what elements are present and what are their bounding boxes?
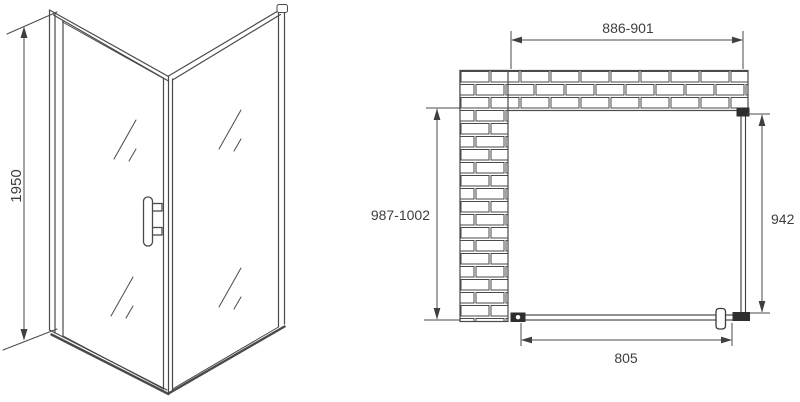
arrow-right-icon — [732, 37, 743, 44]
dimension-top-width — [511, 31, 743, 69]
shower-3d-view — [3, 5, 288, 395]
wall-bracket — [737, 108, 750, 117]
door-handle — [144, 197, 163, 246]
side-panel-bottom-rail — [169, 327, 285, 394]
left-depth-dimension-label: 987-1002 — [371, 207, 430, 223]
side-panel-wall-post — [277, 5, 288, 328]
hinge-pin — [516, 315, 520, 319]
arrow-down-icon — [759, 301, 766, 313]
side-panel-top-frame — [169, 10, 281, 81]
plan-view: 886-901 987-1002 942 805 — [371, 20, 795, 366]
arrow-up-icon — [434, 109, 441, 121]
door-width-dimension-label: 805 — [614, 350, 638, 366]
door-plan — [511, 309, 734, 330]
arrow-left-icon — [511, 37, 522, 44]
shower-enclosure-diagram: 1950 886-901 — [0, 0, 800, 402]
brick-wall-vertical — [460, 71, 508, 322]
arrow-right-icon — [721, 337, 732, 344]
door-glass — [524, 315, 733, 320]
dimension-door-width — [521, 323, 732, 346]
side-panel-dimension-label: 942 — [771, 211, 795, 227]
arrow-down-icon — [21, 329, 28, 341]
side-panel-plan — [733, 108, 751, 322]
technical-drawing-canvas: 1950 886-901 — [0, 0, 800, 402]
top-width-dimension-label: 886-901 — [602, 20, 654, 36]
arrow-up-icon — [21, 27, 28, 39]
glass-shine-marks — [111, 110, 241, 318]
door-hinge-post — [50, 10, 64, 336]
door-handle-plan — [716, 309, 726, 330]
height-dimension-label: 1950 — [8, 169, 25, 202]
corner-connector — [733, 312, 751, 321]
dimension-side-panel — [747, 114, 770, 313]
corner-post — [164, 76, 173, 392]
arrow-down-icon — [434, 308, 441, 320]
arrow-left-icon — [521, 337, 532, 344]
arrow-up-icon — [759, 115, 766, 127]
door-top-frame — [50, 10, 169, 81]
door-bottom-rail — [50, 330, 169, 394]
